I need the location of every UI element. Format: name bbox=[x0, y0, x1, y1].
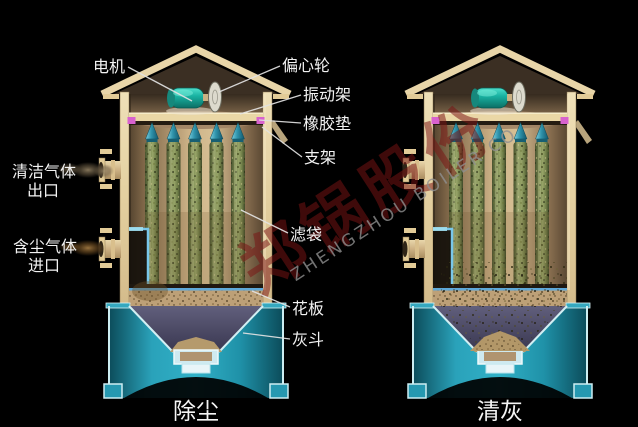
caption-ash-cleaning: 清灰 bbox=[477, 399, 523, 425]
falling-dust-band bbox=[441, 262, 567, 307]
label-eccentric-wheel: 偏心轮 bbox=[282, 56, 330, 75]
baghouse-filter-diagram: 郑锅股份 ZHENGZHOU BOILER CO 电机 偏心轮 振动架 橡胶垫 … bbox=[0, 0, 638, 427]
label-dusty-gas-line1: 含尘气体 bbox=[13, 237, 77, 256]
label-motor: 电机 bbox=[93, 57, 125, 76]
diagram-canvas: 郑锅股份 ZHENGZHOU BOILER CO 电机 偏心轮 振动架 橡胶垫 … bbox=[0, 0, 638, 427]
label-tube-sheet: 花板 bbox=[292, 299, 324, 318]
caption-dust-removal: 除尘 bbox=[173, 399, 219, 425]
label-clean-gas-line1: 清洁气体 bbox=[12, 162, 76, 181]
label-rubber-pad: 橡胶垫 bbox=[303, 114, 351, 133]
label-support: 支架 bbox=[304, 148, 336, 167]
label-clean-gas-line2: 出口 bbox=[27, 181, 59, 200]
label-vibration-frame: 振动架 bbox=[303, 85, 351, 104]
label-filter-bag: 滤袋 bbox=[290, 225, 322, 244]
gas-puff bbox=[94, 164, 114, 178]
label-ash-hopper: 灰斗 bbox=[292, 330, 324, 349]
label-dusty-gas-line2: 进口 bbox=[28, 256, 60, 275]
inlet-dust-smudge bbox=[132, 281, 168, 301]
